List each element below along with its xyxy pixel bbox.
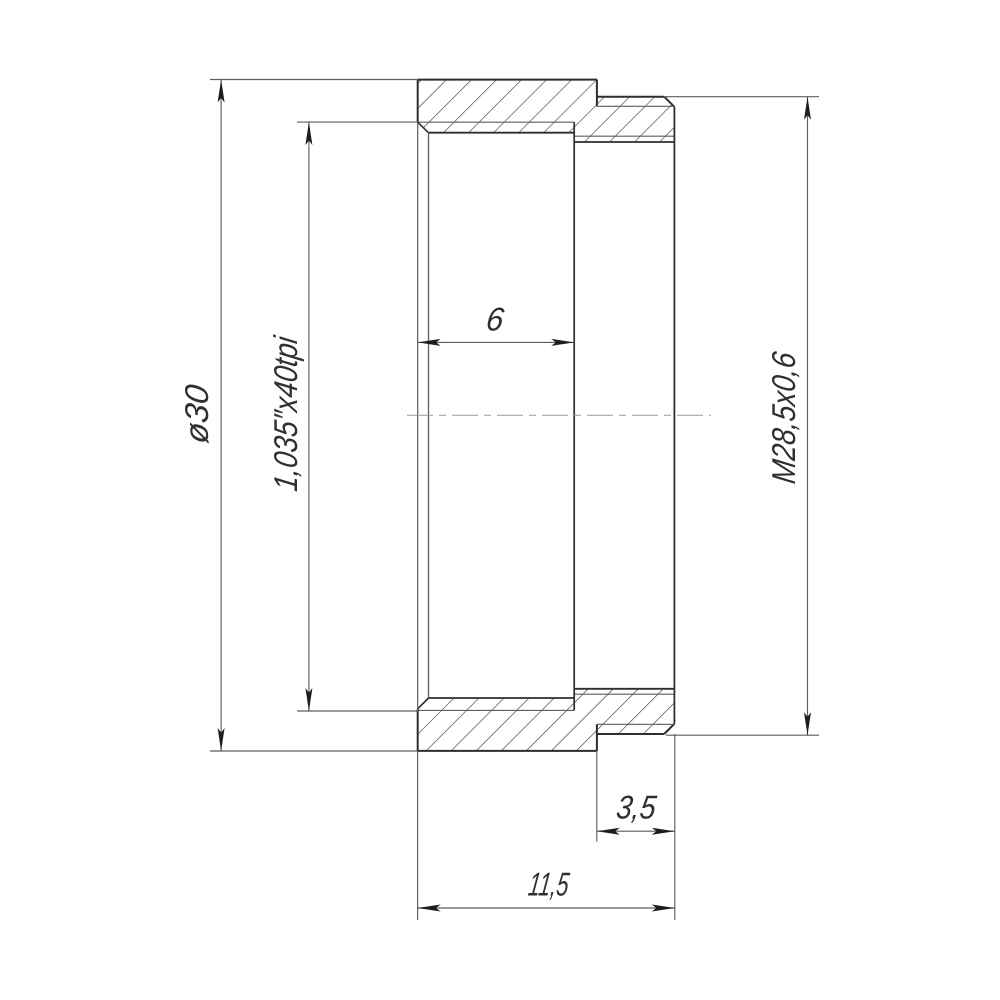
svg-text:M28,5x0,6: M28,5x0,6 — [766, 349, 803, 486]
svg-text:ø30: ø30 — [179, 382, 216, 446]
svg-text:11,5: 11,5 — [526, 867, 572, 904]
svg-text:1,035″x40tpi: 1,035″x40tpi — [268, 333, 305, 494]
svg-text:3,5: 3,5 — [614, 790, 659, 827]
